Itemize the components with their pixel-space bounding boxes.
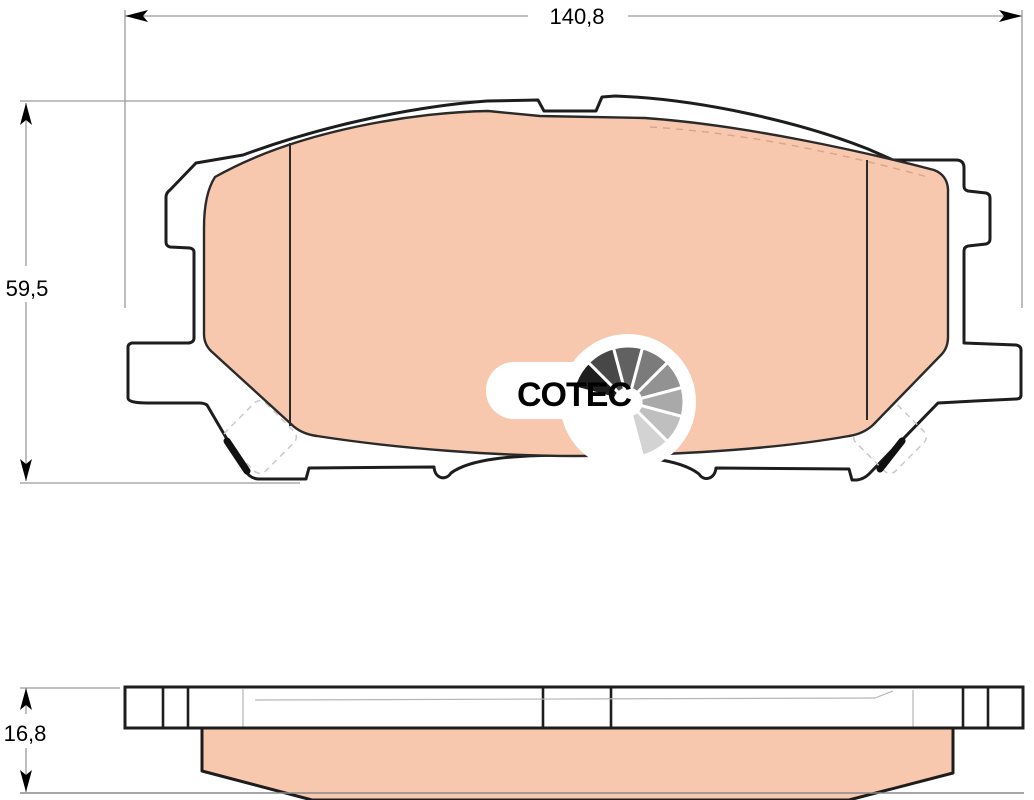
side-friction-material [202, 728, 953, 800]
drawing-svg: 140,8 59,5 16,8 [0, 0, 1034, 800]
side-view [20, 687, 1024, 800]
thickness-dimension-label: 16,8 [4, 721, 47, 746]
cotec-logo-text: COTEC [517, 376, 631, 414]
width-dimension-label: 140,8 [549, 4, 604, 29]
height-dimension-label: 59,5 [6, 276, 49, 301]
thickness-dimension: 16,8 [4, 688, 120, 792]
brake-pad-drawing: 140,8 59,5 16,8 [0, 0, 1034, 800]
